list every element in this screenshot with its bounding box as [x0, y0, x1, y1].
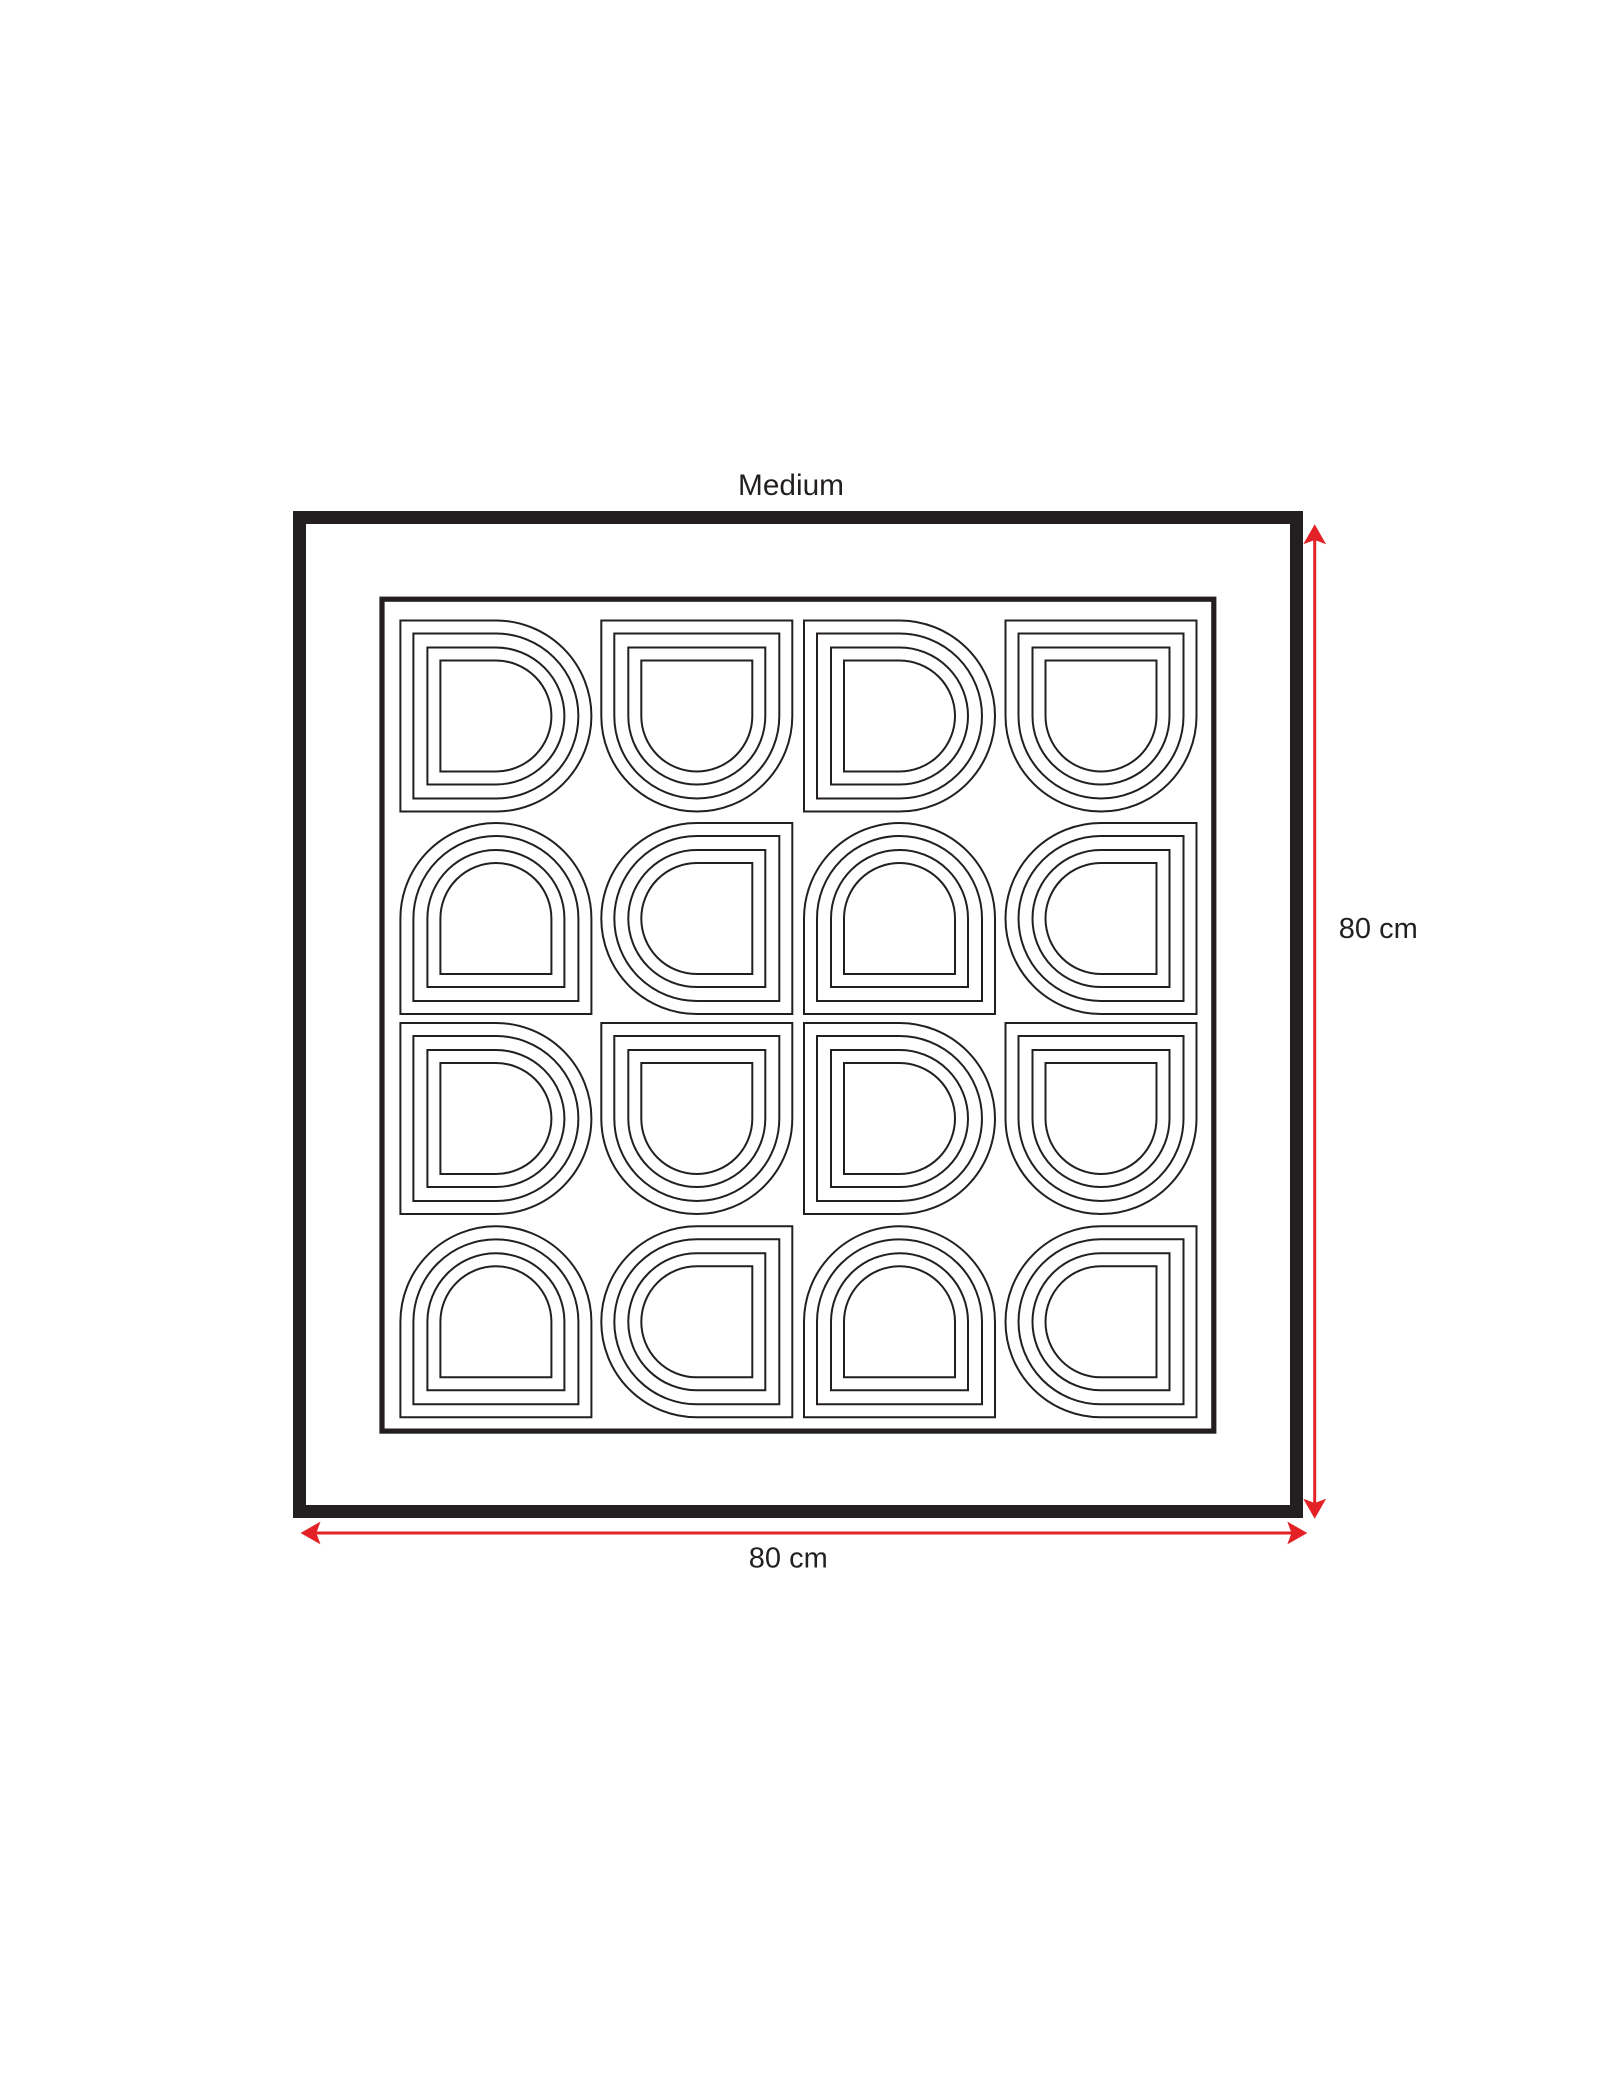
- svg-text:80 cm: 80 cm: [749, 1543, 828, 1575]
- svg-text:Medium: Medium: [738, 469, 844, 502]
- svg-text:80 cm: 80 cm: [1339, 913, 1418, 945]
